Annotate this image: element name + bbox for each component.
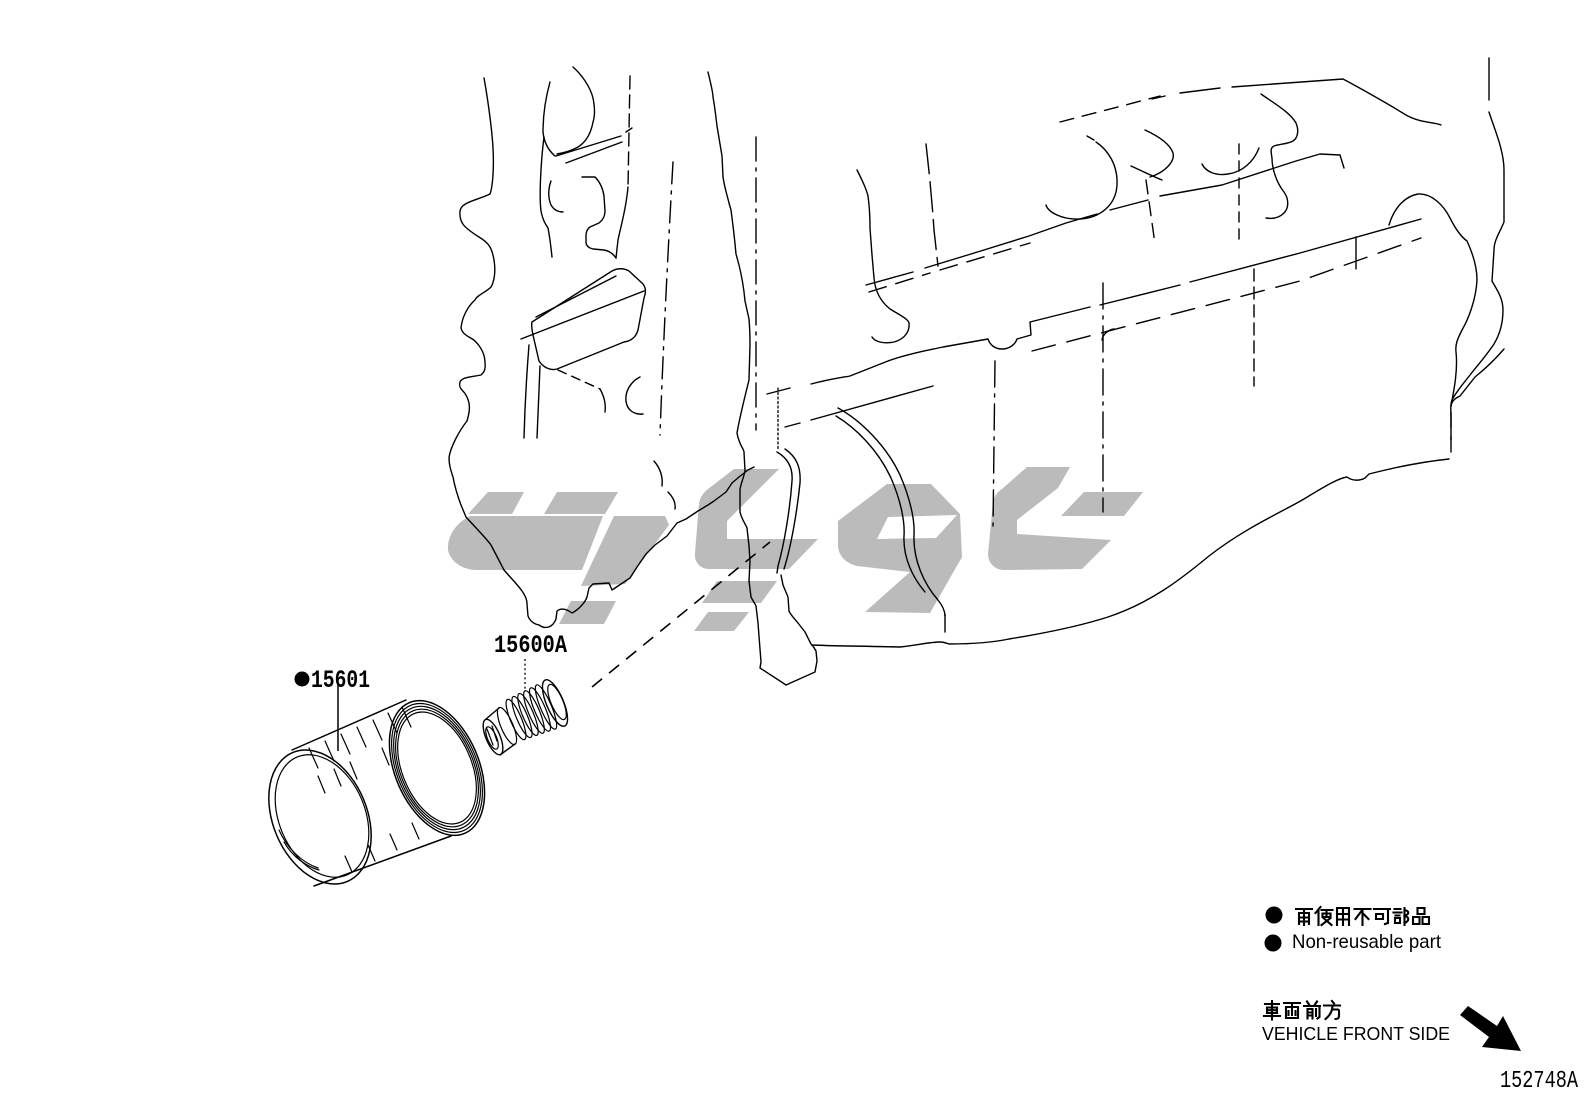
svg-text:VEHICLE FRONT SIDE: VEHICLE FRONT SIDE: [1262, 1023, 1450, 1044]
svg-text:Non-reusable part: Non-reusable part: [1292, 931, 1442, 953]
svg-text:15601: 15601: [311, 666, 370, 695]
svg-text:152748A: 152748A: [1500, 1068, 1578, 1095]
svg-text:15600A: 15600A: [494, 631, 567, 660]
